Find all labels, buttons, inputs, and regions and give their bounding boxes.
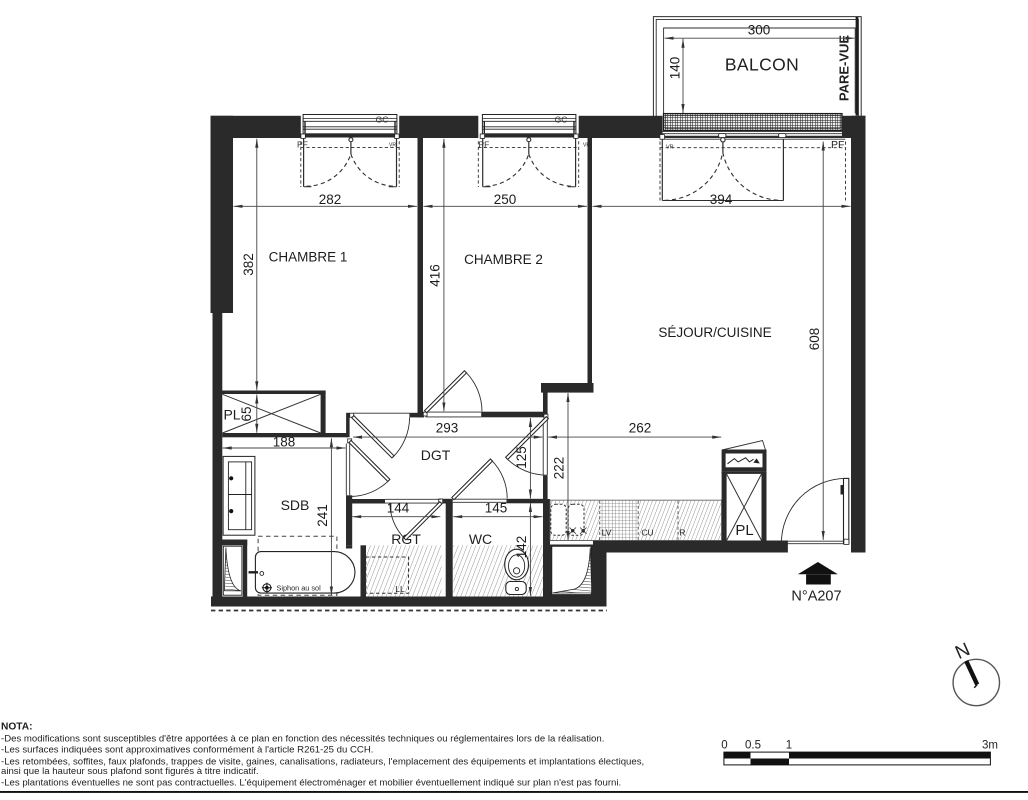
svg-text:608: 608 <box>807 328 822 351</box>
svg-text:0: 0 <box>721 740 727 752</box>
svg-text:-Les surfaces indiquées sont a: -Les surfaces indiquées sont approximati… <box>1 745 373 756</box>
svg-text:0.5: 0.5 <box>745 740 761 752</box>
svg-text:140: 140 <box>668 57 683 80</box>
svg-text:-Des modifications sont suscep: -Des modifications sont susceptibles d'ê… <box>1 733 604 744</box>
svg-text:250: 250 <box>494 192 517 207</box>
svg-text:LL: LL <box>395 584 405 594</box>
svg-text:300: 300 <box>748 23 771 38</box>
svg-text:293: 293 <box>436 421 459 436</box>
svg-text:CU: CU <box>641 528 653 538</box>
svg-text:222: 222 <box>552 457 567 480</box>
svg-text:282: 282 <box>319 192 342 207</box>
svg-text:125: 125 <box>514 446 529 469</box>
svg-text:VR: VR <box>583 142 590 148</box>
svg-text:-Les plantations éventuelles n: -Les plantations éventuelles ne sont pas… <box>1 778 621 789</box>
svg-text:GC: GC <box>555 115 568 125</box>
svg-text:BALCON: BALCON <box>725 55 799 75</box>
svg-text:PF: PF <box>831 139 844 151</box>
svg-text:SDB: SDB <box>281 497 310 513</box>
svg-text:CHAMBRE 1: CHAMBRE 1 <box>269 250 348 265</box>
svg-text:ainsi que la hauteur sous plaf: ainsi que la hauteur sous plafond sont f… <box>1 766 259 777</box>
svg-text:145: 145 <box>485 500 508 515</box>
svg-text:142: 142 <box>514 536 529 559</box>
svg-text:PL: PL <box>735 522 753 539</box>
svg-text:188: 188 <box>273 434 296 449</box>
svg-text:3m: 3m <box>982 740 998 752</box>
svg-text:PF: PF <box>479 140 490 150</box>
svg-text:VR: VR <box>666 145 674 151</box>
svg-text:LV: LV <box>602 528 612 538</box>
svg-text:WC: WC <box>469 531 492 547</box>
svg-text:416: 416 <box>428 264 443 287</box>
svg-text:Siphon au sol: Siphon au sol <box>277 583 322 592</box>
svg-text:SÉJOUR/CUISINE: SÉJOUR/CUISINE <box>658 325 771 340</box>
svg-text:65: 65 <box>239 406 254 421</box>
svg-text:VR: VR <box>389 142 396 148</box>
svg-text:R: R <box>679 528 685 538</box>
svg-text:241: 241 <box>315 504 330 527</box>
svg-text:N°A207: N°A207 <box>791 589 841 605</box>
svg-text:382: 382 <box>241 253 256 276</box>
svg-text:NOTA:: NOTA: <box>1 722 33 733</box>
svg-text:262: 262 <box>629 421 652 436</box>
svg-text:PARE-VUE: PARE-VUE <box>837 35 852 102</box>
svg-text:DGT: DGT <box>421 447 451 463</box>
svg-text:GC: GC <box>376 115 389 125</box>
svg-text:1: 1 <box>786 740 792 752</box>
svg-text:CHAMBRE 2: CHAMBRE 2 <box>464 252 543 267</box>
svg-text:PF: PF <box>297 140 308 150</box>
svg-text:144: 144 <box>387 500 410 515</box>
svg-text:394: 394 <box>710 192 733 207</box>
